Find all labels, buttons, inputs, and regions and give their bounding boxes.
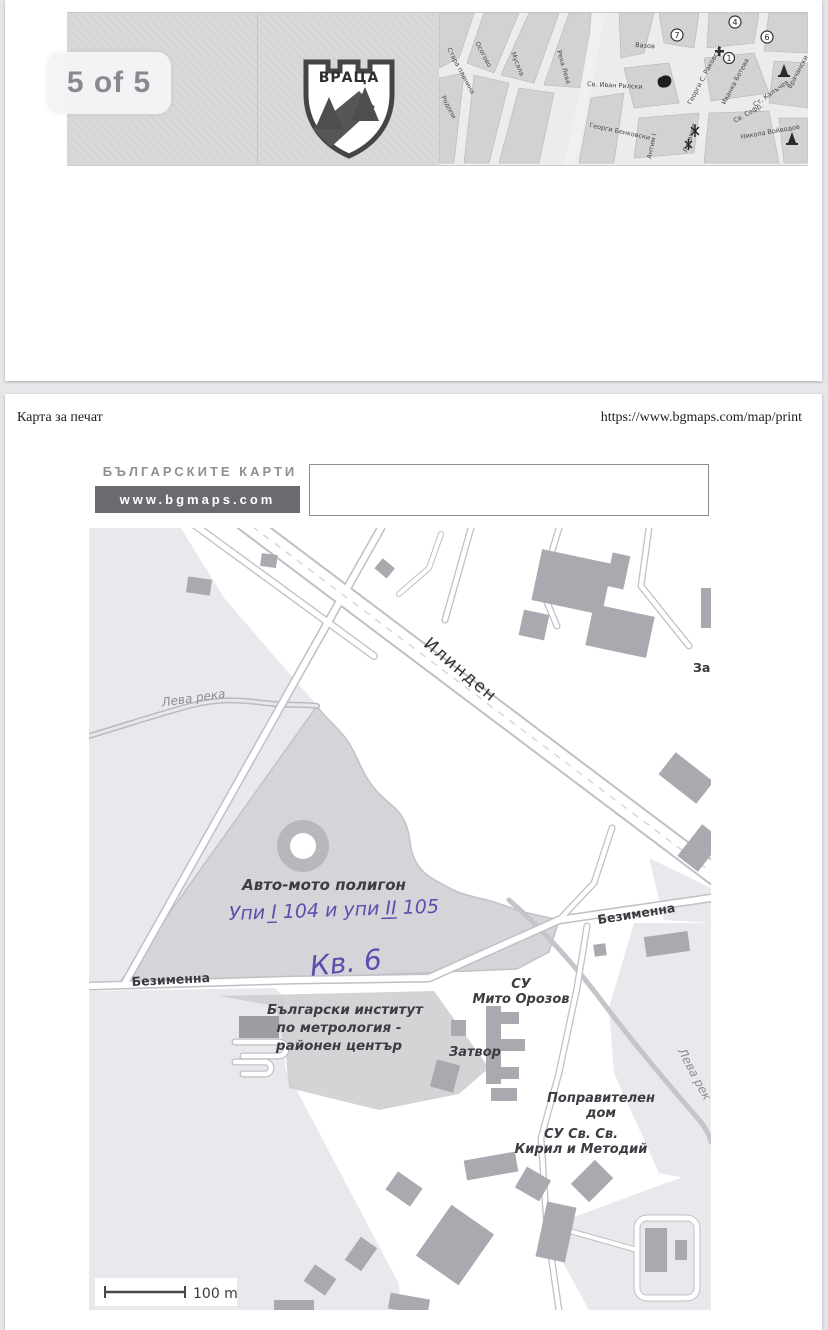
city-map-fragment: 7 4 6 1 xyxy=(439,13,808,165)
poi-prison: Затвор xyxy=(449,1045,501,1060)
scale-label: 100 m xyxy=(193,1286,238,1302)
bgmaps-logo-title: БЪЛГАРСКИТЕ КАРТИ xyxy=(100,464,300,479)
page-indicator-badge: 5 of 5 xyxy=(47,52,171,114)
poi-school2-line2: Кирил и Методий xyxy=(515,1142,648,1157)
poi-school1-line2: Мито Орозов xyxy=(472,992,569,1007)
ring-track-symbol xyxy=(277,820,329,872)
bgmaps-logo-url: www.bgmaps.com xyxy=(95,486,300,513)
print-page-url: https://www.bgmaps.com/map/print xyxy=(601,410,802,426)
print-page-title: Карта за печат xyxy=(17,410,103,426)
poi-correctional-line2: дом xyxy=(585,1106,616,1121)
poi-correctional-line1: Поправителен xyxy=(547,1091,655,1106)
street-label: Вазов xyxy=(635,41,655,50)
scale-bar: 100 m xyxy=(95,1278,238,1306)
marker-1: 1 xyxy=(726,54,731,63)
vratsa-coat-of-arms: ВРАЦА xyxy=(301,57,397,169)
poi-institute-line3: районен център xyxy=(275,1038,402,1054)
marker-6: 6 xyxy=(764,33,769,42)
poi-school1-line1: СУ xyxy=(511,977,532,992)
poi-institute-line1: Български институт xyxy=(267,1002,424,1018)
print-header-box xyxy=(309,464,709,516)
print-map: Илинден Безименна Безименна Лева река Ле… xyxy=(89,528,711,1310)
scanned-map-strip: ВРАЦА xyxy=(67,12,808,166)
poi-institute-line2: по метрология - xyxy=(277,1020,402,1036)
scanned-page-1: ВРАЦА xyxy=(5,0,822,381)
crest-city-name: ВРАЦА xyxy=(319,70,380,86)
scanned-page-2: Карта за печат https://www.bgmaps.com/ma… xyxy=(5,394,822,1330)
marker-4: 4 xyxy=(732,18,737,27)
poi-avto-moto: Авто-мото полигон xyxy=(241,876,406,894)
fold-line xyxy=(257,13,258,165)
partial-label-ne: За xyxy=(693,660,710,675)
marker-7: 7 xyxy=(674,31,679,40)
document-viewer: ВРАЦА xyxy=(0,0,828,1330)
poi-school2-line1: СУ Св. Св. xyxy=(544,1127,618,1142)
